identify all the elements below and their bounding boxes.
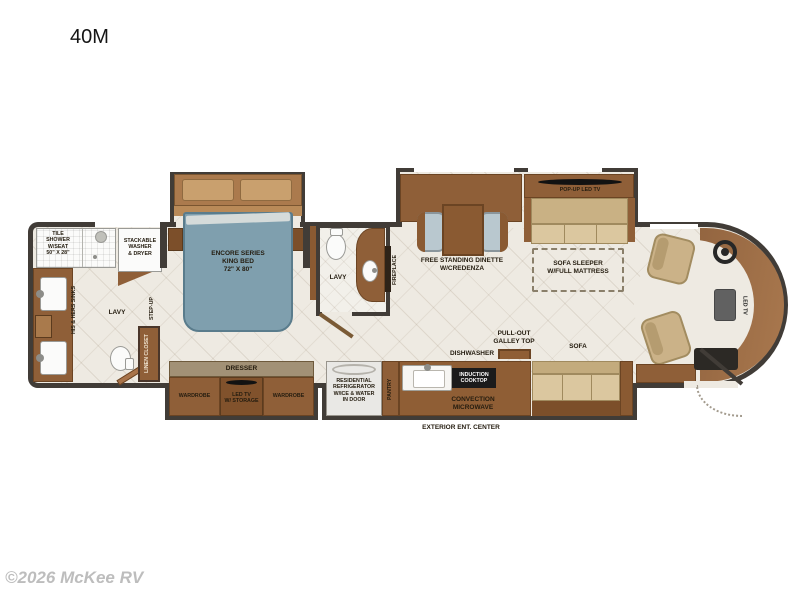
front-tv-label: LED TV xyxy=(741,289,747,321)
sofa-cushions xyxy=(532,374,620,401)
bedroom-tv-label: LED TV W/ STORAGE xyxy=(221,392,262,405)
sofa-sleeper-cushions xyxy=(531,224,628,244)
sink-left-2 xyxy=(40,341,67,375)
seat-back xyxy=(651,236,670,270)
shower-drain-icon xyxy=(93,255,97,259)
sofa-sleeper-arm-right xyxy=(628,198,635,242)
window xyxy=(528,168,602,172)
steering-hub-icon xyxy=(721,248,729,256)
dinette-table xyxy=(442,204,484,256)
cushion-divider xyxy=(591,375,592,400)
cushion-divider xyxy=(596,225,597,243)
window xyxy=(95,222,161,227)
faucet-icon xyxy=(424,364,431,371)
shower-head-icon xyxy=(95,231,107,243)
sink-basin xyxy=(413,370,445,388)
tile-shower-label: TILE SHOWER W/SEAT 50" X 28" xyxy=(37,231,79,256)
washer-dryer-label: STACKABLE WASHER & DRYER xyxy=(119,238,161,257)
front-tv xyxy=(714,289,736,321)
sofa-end-cabinet xyxy=(620,361,633,416)
sofa-back xyxy=(532,361,620,374)
galley-top xyxy=(498,349,531,359)
bedroom-tv-icon xyxy=(226,380,257,385)
cushion-divider xyxy=(564,225,565,243)
chair-back xyxy=(500,212,508,252)
nightstand-left xyxy=(168,228,183,251)
pantry-label: PANTRY xyxy=(387,368,393,410)
microwave-label: CONVECTION MICROWAVE xyxy=(443,396,503,412)
pillow xyxy=(182,179,234,201)
kitchen-sink xyxy=(402,365,452,391)
cushion-divider xyxy=(562,375,563,400)
mid-toilet xyxy=(326,234,346,260)
door-swing-arc xyxy=(696,385,742,417)
bath-wall xyxy=(160,222,167,268)
dishwasher-label: DISHWASHER xyxy=(438,350,506,358)
faucet-icon xyxy=(36,354,44,362)
faucet-icon xyxy=(372,268,377,273)
mid-lavy-label: LAVY xyxy=(322,274,354,282)
induction-cooktop-label: INDUCTION COOKTOP xyxy=(452,372,496,385)
pillow xyxy=(240,179,292,201)
dresser-label: DRESSER xyxy=(169,365,314,373)
galley-top-label: PULL-OUT GALLEY TOP xyxy=(482,330,546,346)
popup-tv-icon xyxy=(538,179,622,185)
sofa-base xyxy=(532,401,620,416)
rear-lavy-label: LAVY xyxy=(100,309,134,317)
fridge-top-arc xyxy=(332,364,376,375)
faucet-icon xyxy=(36,290,44,298)
dinette-label: FREE STANDING DINETTE W/CREDENZA xyxy=(412,257,512,273)
watermark: ©2026 McKee RV xyxy=(5,568,143,588)
floorplan-canvas: 40M TILE SHOWER W/SEAT 50" X 28" STACKAB… xyxy=(0,0,800,600)
counter-drawers xyxy=(35,315,52,338)
wardrobe-left-label: WARDROBE xyxy=(169,393,220,399)
rear-toilet-tank xyxy=(125,358,134,370)
page-title: 40M xyxy=(70,26,109,49)
fireplace-label: FIREPLACE xyxy=(392,248,398,292)
fireplace xyxy=(385,246,391,292)
window xyxy=(414,168,514,172)
wardrobe-right-label: WARDROBE xyxy=(263,393,314,399)
mid-toilet-tank xyxy=(330,228,343,236)
step-up-label: STEP-UP xyxy=(149,292,155,326)
popup-tv-label: POP-UP LED TV xyxy=(534,187,626,193)
shower-divider xyxy=(82,229,83,267)
sofa-sleeper-back xyxy=(531,198,628,224)
exterior-ent-label: EXTERIOR ENT. CENTER xyxy=(396,424,526,432)
sofa-label: SOFA xyxy=(561,343,595,351)
sofa-sleeper-label: SOFA SLEEPER W/FULL MATTRESS xyxy=(536,260,620,276)
king-bed-label: ENCORE SERIES KING BED 72" X 80" xyxy=(193,250,283,273)
refrigerator-label: RESIDENTIAL REFRIGERATOR W/ICE & WATER I… xyxy=(327,378,381,403)
sink-left-1 xyxy=(40,277,67,311)
chair-back xyxy=(417,212,425,252)
tv-lift-cabinet xyxy=(524,174,634,198)
linen-closet-label: LINEN CLOSET xyxy=(144,330,150,378)
window xyxy=(650,224,698,229)
sofa-sleeper-arm-left xyxy=(524,198,531,242)
his-hers-sinks-label: HIS & HERS SINKS xyxy=(71,282,77,338)
